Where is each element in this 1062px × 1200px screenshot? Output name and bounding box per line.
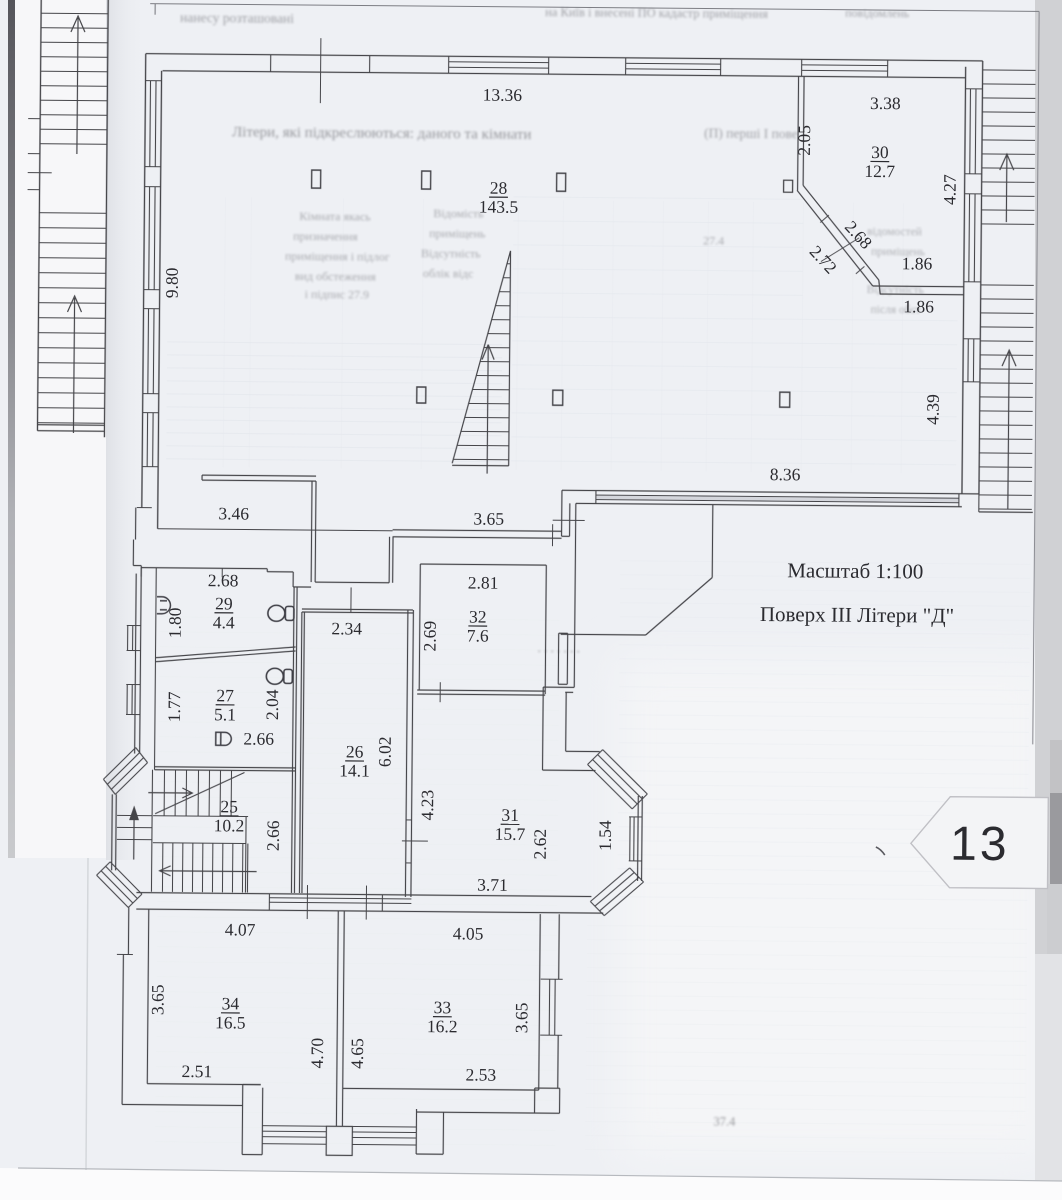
svg-text:3.65: 3.65	[473, 508, 504, 528]
svg-text:14.1: 14.1	[339, 760, 370, 780]
svg-text:29: 29	[215, 593, 233, 613]
svg-text:28: 28	[490, 178, 508, 198]
svg-text:30: 30	[871, 142, 889, 162]
svg-text:12.7: 12.7	[864, 161, 895, 181]
svg-text:облік відс: облік відс	[423, 266, 474, 280]
svg-text:Поверх III Літери "Д": Поверх III Літери "Д"	[760, 602, 954, 628]
svg-text:2.53: 2.53	[465, 1064, 496, 1084]
svg-text:приміщень: приміщень	[429, 226, 486, 240]
svg-text:4.39: 4.39	[923, 394, 943, 425]
svg-text:2.66: 2.66	[263, 820, 283, 851]
svg-text:2.34: 2.34	[331, 618, 362, 638]
svg-text:2.05: 2.05	[794, 125, 814, 156]
svg-text:2.66: 2.66	[243, 728, 274, 748]
svg-text:27: 27	[216, 685, 234, 705]
svg-text:3.71: 3.71	[477, 875, 508, 895]
svg-text:Масштаб 1:100: Масштаб 1:100	[787, 558, 923, 583]
svg-text:27.4: 27.4	[703, 233, 724, 247]
svg-text:3.46: 3.46	[218, 503, 249, 523]
svg-text:9.80: 9.80	[162, 267, 182, 298]
svg-text:Літери, які підкреслюються: да: Літери, які підкреслюються: даного та кі…	[232, 124, 532, 143]
svg-text:2.51: 2.51	[181, 1061, 212, 1081]
svg-text:1.80: 1.80	[165, 607, 185, 638]
svg-text:1.54: 1.54	[595, 820, 615, 851]
svg-text:нанесу розташовані: нанесу розташовані	[180, 10, 294, 26]
svg-text:33: 33	[434, 997, 452, 1017]
svg-text:6.02: 6.02	[375, 736, 395, 767]
svg-text:143.5: 143.5	[479, 197, 519, 217]
svg-text:3.38: 3.38	[870, 93, 901, 113]
svg-text:15.7: 15.7	[495, 824, 526, 844]
svg-text:Відсутність: Відсутність	[421, 246, 481, 261]
svg-text:1.77: 1.77	[164, 691, 184, 722]
svg-text:2.68: 2.68	[208, 570, 239, 590]
svg-text:4.05: 4.05	[453, 923, 484, 943]
svg-text:(П) перші І пове: (П) перші І пове	[704, 125, 798, 141]
svg-text:4.23: 4.23	[417, 789, 437, 820]
svg-text:вид обстеження: вид обстеження	[295, 269, 377, 284]
svg-text:13.36: 13.36	[483, 85, 523, 105]
svg-text:2.69: 2.69	[420, 620, 440, 651]
svg-text:34: 34	[222, 993, 240, 1013]
svg-text:3.65: 3.65	[511, 1002, 531, 1033]
svg-text:4.65: 4.65	[347, 1038, 367, 1069]
svg-text:і підпис 27.9: і підпис 27.9	[305, 287, 369, 302]
svg-text:4.07: 4.07	[225, 919, 256, 939]
svg-text:2.81: 2.81	[468, 572, 499, 592]
svg-text:4.27: 4.27	[939, 174, 959, 205]
svg-text:16.2: 16.2	[427, 1016, 458, 1036]
svg-text:4.70: 4.70	[307, 1038, 327, 1069]
svg-text:10.2: 10.2	[214, 815, 245, 835]
svg-text:Кімната якась: Кімната якась	[299, 209, 371, 224]
svg-text:приміщення і підлог: приміщення і підлог	[285, 249, 390, 264]
svg-text:відомостей: відомостей	[867, 226, 922, 238]
svg-text:13: 13	[950, 818, 1010, 872]
svg-text:16.5: 16.5	[215, 1012, 246, 1032]
svg-text:37.4: 37.4	[713, 1115, 736, 1129]
svg-text:26: 26	[346, 741, 364, 761]
svg-text:31: 31	[501, 805, 519, 825]
svg-text:призначення: призначення	[293, 229, 358, 244]
svg-text:3.65: 3.65	[147, 984, 167, 1015]
svg-text:32: 32	[469, 606, 487, 626]
svg-text:2.04: 2.04	[262, 689, 282, 720]
svg-text:5.1: 5.1	[214, 704, 236, 724]
svg-text:повідомлень: повідомлень	[845, 6, 910, 21]
svg-text:2.62: 2.62	[530, 829, 550, 860]
svg-text:1.86: 1.86	[902, 253, 933, 273]
svg-text:7.6: 7.6	[467, 625, 489, 645]
svg-text:25: 25	[220, 796, 238, 816]
svg-text:1.86: 1.86	[903, 296, 934, 316]
svg-text:Відомість: Відомість	[433, 206, 484, 220]
svg-text:8.36: 8.36	[770, 464, 801, 484]
svg-text:4.4: 4.4	[213, 612, 235, 632]
